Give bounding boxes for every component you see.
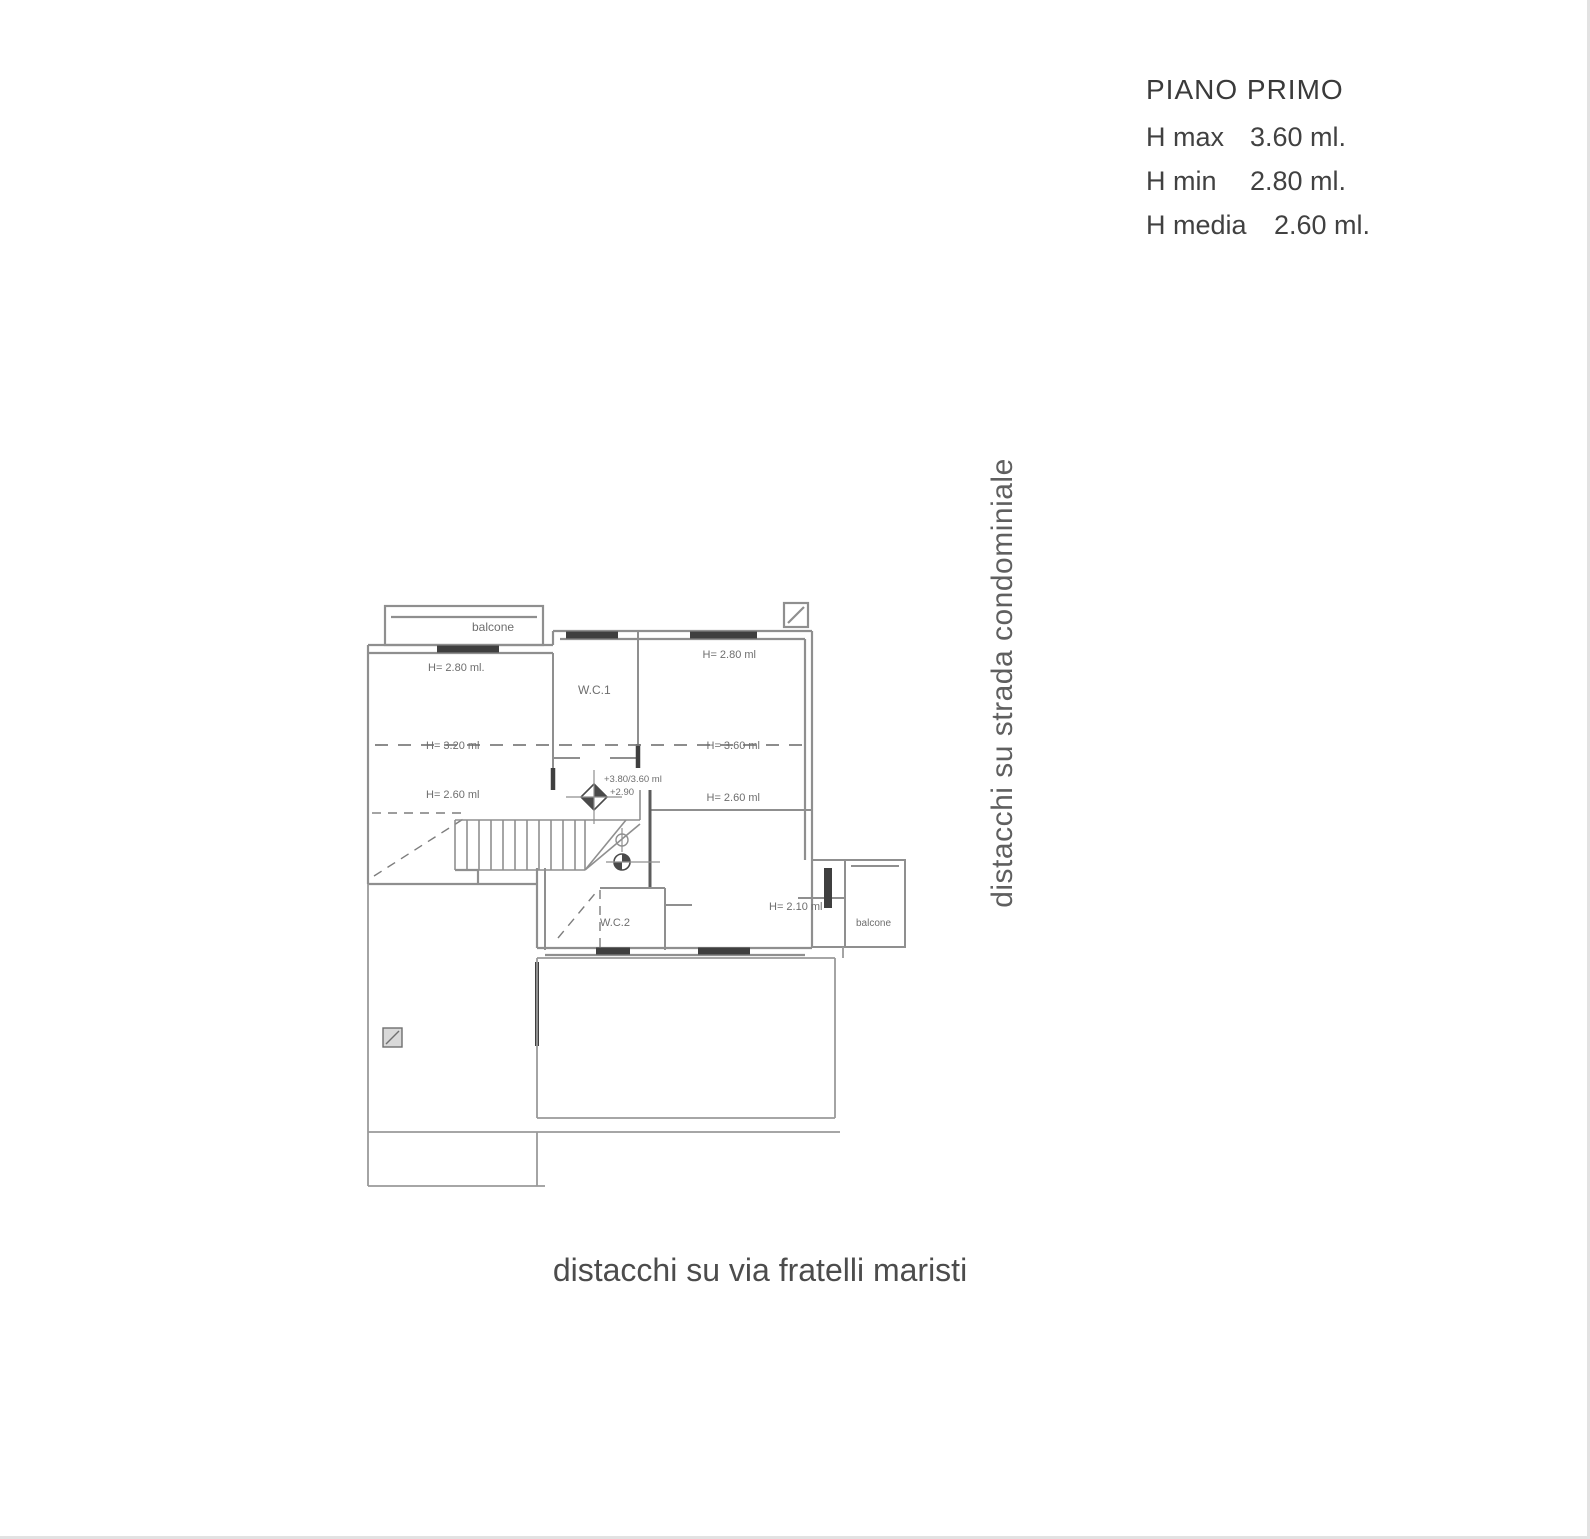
dashed-lines [372,745,805,948]
scanned-floor-plan-page: PIANO PRIMO H max 3.60 ml. H min 2.80 ml… [0,0,1590,1539]
height-left-low: H= 2.60 ml [426,789,480,801]
floor-plan-svg: balcone W.C.1 W.C.2 balcone H= 2.80 ml. … [0,0,1590,1539]
terrace-chimney [383,1028,402,1047]
level-label-line1: +3.80/3.60 ml [604,774,662,785]
stairs [455,790,640,870]
wc1-label: W.C.1 [578,683,611,697]
balcony-right [845,860,905,947]
wc2-label: W.C.2 [600,917,630,929]
height-right-top: H= 2.80 ml [703,649,757,661]
height-right-low: H= 2.60 ml [707,792,761,804]
height-left-top: H= 2.80 ml. [428,662,485,674]
level-label-line2: +2.90 [610,787,634,798]
window-segments [437,635,828,1046]
balcony-top-outline [385,606,543,645]
height-right-mid: H= 3.60 ml [707,740,761,752]
height-balcony-door: H= 2.10 ml [769,901,823,913]
height-left-mid: H= 3.20 ml [426,740,480,752]
balcony-top-label: balcone [472,620,514,634]
balcony-right-label: balcone [856,918,891,929]
plan-labels: balcone W.C.1 W.C.2 balcone H= 2.80 ml. … [426,620,891,929]
terrace-outline [368,884,843,1186]
